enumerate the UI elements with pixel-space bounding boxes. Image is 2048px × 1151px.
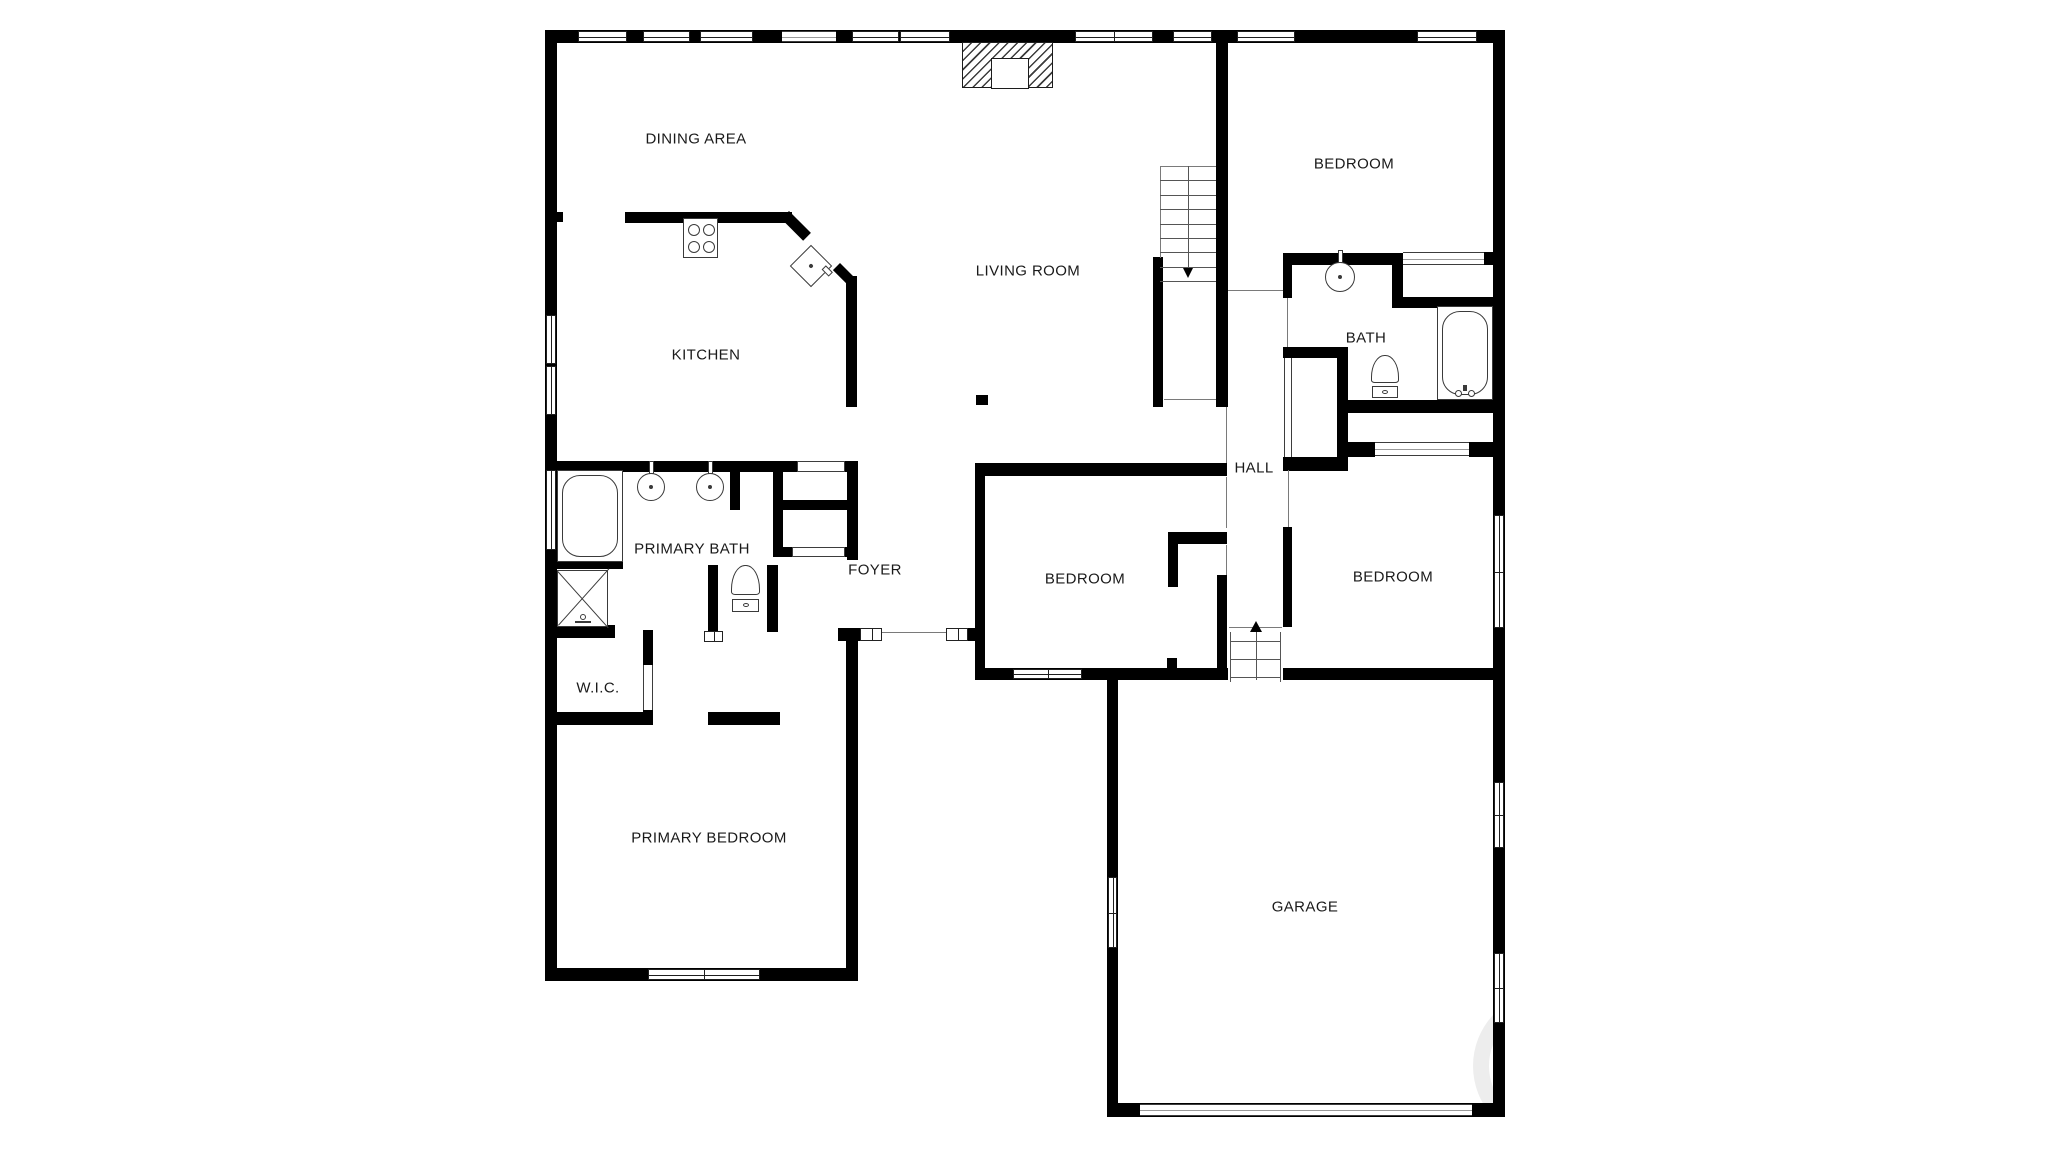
window — [643, 31, 690, 42]
step-centerline — [1256, 632, 1257, 680]
window-glass-line — [644, 37, 689, 38]
toilet — [1371, 355, 1399, 398]
wall-segment — [1283, 668, 1505, 680]
wall-segment — [1484, 252, 1505, 265]
wall-segment — [846, 276, 857, 407]
step-edge — [1230, 632, 1231, 682]
sink-drain-icon — [708, 485, 712, 489]
wall-segment — [975, 463, 1227, 476]
wall-segment — [773, 500, 858, 510]
threshold-line — [1287, 298, 1288, 347]
stove-burner-icon — [703, 224, 715, 236]
wall-segment — [1348, 400, 1505, 413]
wall-segment — [767, 565, 778, 632]
toilet-bowl — [731, 565, 760, 595]
room-label-bedroom-middle: BEDROOM — [1045, 571, 1125, 588]
threshold-line — [1228, 290, 1283, 291]
wall-segment — [1217, 575, 1227, 670]
wall-segment — [1167, 658, 1177, 670]
garage-door — [1140, 1104, 1472, 1116]
wall-segment — [773, 547, 793, 557]
window — [648, 969, 760, 980]
wall-segment — [708, 565, 718, 635]
window — [1173, 31, 1212, 42]
window-glass-line — [853, 37, 898, 38]
toilet-tank — [1372, 386, 1398, 398]
wall-segment — [976, 395, 988, 405]
window — [1417, 31, 1477, 42]
bath-door-jamb — [704, 631, 723, 642]
window-glass-line — [551, 316, 552, 363]
stove-burner-icon — [688, 224, 700, 236]
stair-tread — [1160, 281, 1216, 282]
wall-segment — [1216, 30, 1228, 407]
shower-head-icon — [580, 614, 586, 620]
window — [1494, 953, 1504, 1023]
stair-centerline — [1188, 166, 1189, 268]
wall-segment — [846, 632, 858, 981]
wall-segment — [1168, 544, 1178, 587]
wall-segment — [730, 467, 740, 510]
linen-closet-opening — [1284, 358, 1292, 457]
wall-segment — [845, 547, 858, 557]
stove-burner-icon — [703, 241, 715, 253]
island-drain-icon — [808, 263, 814, 269]
room-label-kitchen: KITCHEN — [672, 347, 741, 364]
jamb-divider — [958, 629, 959, 640]
room-label-primary-bedroom: PRIMARY BEDROOM — [631, 830, 786, 847]
room-label-bedroom-right: BEDROOM — [1353, 569, 1433, 586]
room-label-bedroom-top: BEDROOM — [1314, 156, 1394, 173]
toilet-tank — [732, 599, 759, 612]
slider-track-line — [1375, 449, 1469, 450]
window — [578, 31, 627, 42]
closet-slider — [1403, 252, 1484, 265]
window-glass-line — [1238, 37, 1294, 38]
watermark-icon — [1473, 991, 1493, 1103]
window — [546, 470, 556, 550]
room-label-foyer: FOYER — [848, 562, 902, 579]
kitchen-island-sink — [790, 245, 832, 287]
wall-segment — [643, 630, 653, 665]
sink-drain-icon — [649, 485, 653, 489]
bathtub-basin — [1442, 311, 1488, 395]
room-label-dining-area: DINING AREA — [645, 131, 746, 148]
tub-spout-icon — [1463, 385, 1467, 391]
threshold-line — [882, 632, 946, 633]
toilet-flush-icon — [743, 603, 749, 607]
window-sash-divider — [1109, 913, 1116, 914]
window-glass-line — [551, 471, 552, 549]
staircase — [1160, 166, 1216, 281]
shower — [557, 570, 608, 627]
window-glass-line — [1174, 37, 1211, 38]
stove-burner-icon — [688, 241, 700, 253]
window — [1494, 515, 1504, 628]
window — [1237, 31, 1295, 42]
window-sash-divider — [1048, 670, 1049, 678]
window-glass-line — [1418, 37, 1476, 38]
front-door-jamb — [946, 628, 968, 641]
slider-track-line — [1140, 1110, 1472, 1111]
room-label-living-room: LIVING ROOM — [976, 263, 1080, 280]
wall-segment — [1348, 442, 1375, 457]
wall-segment — [1337, 347, 1348, 470]
wall-segment — [847, 461, 858, 560]
wall-segment — [545, 712, 653, 725]
window-sash-divider — [1495, 988, 1503, 989]
firebox — [991, 58, 1029, 89]
entry-steps — [1230, 632, 1281, 682]
window-sash-divider — [1495, 815, 1503, 816]
wall-segment — [548, 212, 563, 222]
bathtub — [557, 470, 623, 562]
wall-segment — [1283, 527, 1292, 627]
sink — [696, 473, 724, 501]
pantry-opening — [797, 461, 845, 472]
sink-drain-icon — [1338, 275, 1342, 279]
window — [1075, 31, 1153, 42]
sink — [1325, 262, 1355, 292]
window — [1494, 782, 1504, 848]
room-label-primary-bath: PRIMARY BATH — [634, 541, 750, 558]
wall-segment — [838, 628, 860, 641]
steps-up-arrow-icon — [1250, 621, 1262, 632]
bathtub — [1437, 306, 1493, 400]
patio-opening — [782, 31, 836, 42]
room-label-bath: BATH — [1346, 330, 1387, 347]
window — [900, 31, 950, 42]
wic-door-opening — [643, 665, 653, 710]
slider-track-line — [782, 37, 836, 38]
window-glass-line — [701, 37, 752, 38]
wall-segment — [1168, 532, 1227, 544]
jamb-divider — [714, 632, 715, 641]
room-label-hall: HALL — [1234, 460, 1273, 477]
threshold-line — [1288, 470, 1289, 527]
jamb-divider — [872, 629, 873, 640]
threshold-line — [1226, 477, 1227, 528]
threshold-line — [1226, 545, 1227, 575]
closet-slider — [1375, 442, 1469, 456]
window-glass-line — [901, 37, 949, 38]
tub-faucet-icon — [1455, 390, 1462, 397]
sink-faucet-icon — [708, 461, 713, 474]
step-edge — [1280, 632, 1281, 682]
window-glass-line — [551, 367, 552, 414]
window — [1108, 877, 1117, 948]
island-faucet-icon — [822, 265, 833, 276]
room-label-wic: W.I.C. — [576, 680, 619, 697]
wall-segment — [708, 712, 780, 725]
window — [700, 31, 753, 42]
window-glass-line — [579, 37, 626, 38]
bathtub-basin — [562, 475, 618, 557]
floor-plan: DINING AREAKITCHENLIVING ROOMBEDROOMBATH… — [0, 0, 2048, 1151]
shower-valve-icon — [575, 621, 591, 623]
toilet-bowl — [1371, 355, 1399, 383]
stair-down-arrow-icon — [1183, 268, 1193, 278]
toilet — [731, 565, 760, 612]
window — [852, 31, 899, 42]
tub-faucet-icon — [1468, 390, 1475, 397]
wall-segment-diagonal — [781, 211, 811, 241]
stove — [683, 218, 718, 258]
window — [546, 366, 556, 415]
sink-faucet-icon — [649, 461, 654, 474]
sink — [637, 473, 665, 501]
front-door-jamb — [860, 628, 882, 641]
window — [546, 315, 556, 364]
watermark-clip — [1118, 680, 1493, 1103]
wall-segment — [975, 463, 985, 680]
sink-faucet-icon — [1338, 250, 1343, 263]
closet-opening — [792, 547, 845, 557]
threshold-line — [1164, 399, 1216, 400]
window-sash-divider — [1114, 32, 1115, 41]
window — [1013, 669, 1082, 679]
slider-track-line — [1403, 259, 1484, 260]
fireplace — [962, 42, 1053, 88]
window-sash-divider — [1495, 572, 1503, 573]
wall-segment — [1469, 442, 1493, 457]
toilet-flush-icon — [1382, 390, 1388, 394]
threshold-line — [1226, 407, 1227, 463]
window-sash-divider — [704, 970, 705, 979]
